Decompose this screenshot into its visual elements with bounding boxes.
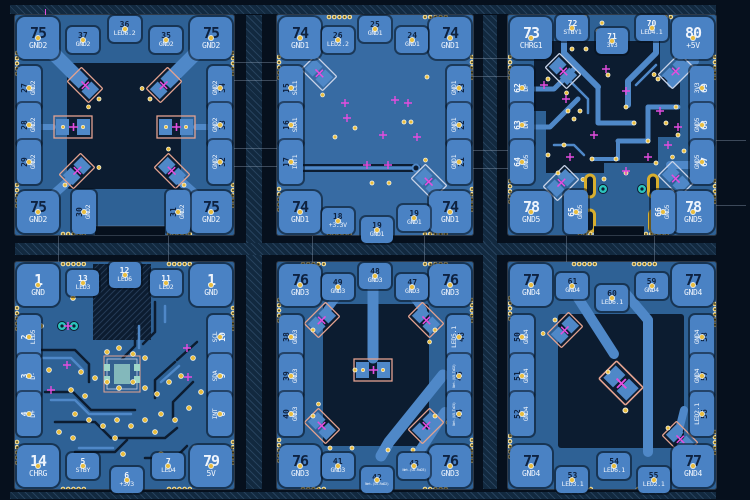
via <box>606 370 610 374</box>
pad-netname: GND4 <box>522 470 540 479</box>
via <box>570 47 574 51</box>
via <box>353 368 357 372</box>
pad-59-gnd4[interactable]: 59GND4 <box>636 273 668 299</box>
pcb-board-3[interactable]: 73CHRG180+5V78GND578GND572STBY1713V370LE… <box>508 15 716 235</box>
pad-49-gnd3[interactable]: 49GND3 <box>322 274 354 300</box>
pad-netname: GND2 <box>29 216 47 225</box>
edge-extension-line <box>233 80 279 81</box>
pad-74-gnd1[interactable]: 74GND1 <box>429 191 471 233</box>
pad-46-led5.1[interactable]: 46LED5.1 <box>447 315 471 359</box>
pad-7-led4[interactable]: 7LED4 <box>152 453 184 479</box>
drill-hole <box>700 335 704 339</box>
pad-netname: GND3 <box>291 470 309 479</box>
pad-25-gnd1[interactable]: 25GND1 <box>359 16 391 42</box>
panel-rail <box>10 492 716 499</box>
via <box>179 374 184 379</box>
pad-75-gnd2[interactable]: 75GND2 <box>17 17 59 59</box>
via <box>79 370 84 375</box>
drill-hole <box>336 285 340 289</box>
pad-57-gnd4[interactable]: 57GND4 <box>690 354 714 398</box>
pad-netname: GND4 <box>684 289 702 298</box>
castellated-holes <box>167 262 192 266</box>
pad-39-gnd3[interactable]: 39GND3 <box>279 354 303 398</box>
pad-77-gnd4[interactable]: 77GND4 <box>672 264 714 306</box>
panel-rail <box>10 5 716 14</box>
pad-32-gnd2[interactable]: 32GND2 <box>208 140 232 184</box>
pad-80-+5v[interactable]: 80+5V <box>672 17 714 59</box>
pad-61-gnd4[interactable]: 61GND4 <box>556 273 588 299</box>
ratsnest-marker <box>343 114 351 122</box>
drill-hole <box>81 464 85 468</box>
pad-8-int[interactable]: 8INT <box>208 392 232 436</box>
drill-hole <box>123 27 127 31</box>
drill-hole <box>529 464 533 468</box>
drill-hole <box>375 478 379 482</box>
board-notch <box>95 226 165 235</box>
drill-hole <box>700 374 704 378</box>
pad-4-d+[interactable]: 4D+ <box>17 392 41 436</box>
via <box>546 153 550 157</box>
pin1-hole <box>540 331 546 337</box>
led-footprint <box>298 55 340 97</box>
pad-76-gnd3[interactable]: 76GND3 <box>429 445 471 487</box>
pad-19-gnd1[interactable]: 19GND1 <box>398 205 430 231</box>
via <box>666 426 670 430</box>
via <box>167 380 172 385</box>
edge-extension-line <box>312 236 313 262</box>
drill-hole <box>336 219 340 223</box>
drill-hole <box>650 26 654 30</box>
pad-29-gnd2[interactable]: 29GND2 <box>17 140 41 184</box>
drill-hole <box>81 281 85 285</box>
pad-netname: Net-(U5-RxD2) <box>365 483 389 487</box>
pad-66-gnd5[interactable]: 66GND5 <box>651 190 675 234</box>
via <box>71 436 76 441</box>
pad-netname: GND3 <box>441 470 459 479</box>
via <box>69 388 74 393</box>
via <box>173 418 178 423</box>
pin1-hole <box>423 157 429 163</box>
ratsnest-marker <box>391 96 399 104</box>
ratsnest-marker <box>413 133 421 141</box>
drill-hole <box>691 464 695 468</box>
pad-netname: GND4 <box>522 289 540 298</box>
via <box>83 394 88 399</box>
pcb-canvas[interactable]: 75GND275GND275GND275GND237GND236LED6.235… <box>0 0 750 500</box>
via <box>159 412 164 417</box>
drill-hole <box>218 335 222 339</box>
pad-50-gnd4[interactable]: 50GND4 <box>510 315 534 359</box>
drill-hole <box>27 374 31 378</box>
pad-netname: GND2 <box>29 42 47 51</box>
via <box>433 414 437 418</box>
pad-netname: GND5 <box>684 216 702 225</box>
edge-extension-line <box>472 168 510 169</box>
edge-extension-line <box>716 205 746 206</box>
drill-hole <box>336 464 340 468</box>
via <box>654 161 658 165</box>
via <box>387 181 391 185</box>
ratsnest-marker <box>341 99 349 107</box>
via <box>624 105 628 109</box>
via <box>153 430 158 435</box>
via <box>353 126 357 130</box>
castellated-holes <box>572 262 597 266</box>
castellated-holes <box>167 487 192 489</box>
pad-10-scl[interactable]: 10SCL <box>208 315 232 359</box>
via <box>117 386 122 391</box>
via <box>199 390 204 395</box>
via <box>646 139 650 143</box>
pad-netname: CHRG <box>29 470 47 479</box>
pad-40-gnd3[interactable]: 40GND3 <box>279 392 303 436</box>
pad-77-gnd4[interactable]: 77GND4 <box>510 445 552 487</box>
via <box>562 143 566 147</box>
pad-65-gnd5[interactable]: 65GND5 <box>564 190 588 234</box>
pad-42-net-u5-rxd2[interactable]: 42Net-(U5-RxD2) <box>361 467 393 493</box>
castellated-holes <box>61 262 86 266</box>
drill-hole <box>375 228 379 232</box>
drill-hole <box>529 283 533 287</box>
pad-11-led2[interactable]: 11LED2 <box>150 270 182 296</box>
copper-zone-void <box>558 314 684 448</box>
pad-19-gnd1[interactable]: 19GND1 <box>361 217 393 243</box>
via <box>191 356 196 361</box>
pad-6-+3v3[interactable]: 6+3V3 <box>111 467 143 493</box>
via <box>590 157 594 161</box>
pad-13-led3[interactable]: 13LED3 <box>67 270 99 296</box>
drill-hole <box>691 36 695 40</box>
drill-hole <box>36 210 40 214</box>
pad-30-gnd2[interactable]: 30GND2 <box>72 190 96 234</box>
via <box>311 414 315 418</box>
via <box>584 47 588 51</box>
via <box>87 418 92 423</box>
pad-1-gnd[interactable]: 1GND <box>17 264 59 306</box>
edge-extension-line <box>472 58 510 59</box>
via <box>402 120 406 124</box>
via <box>553 318 557 322</box>
drill-hole <box>27 335 31 339</box>
pad-78-gnd5[interactable]: 78GND5 <box>510 191 552 233</box>
pad-24-gnd1[interactable]: 24GND1 <box>396 27 428 53</box>
drill-hole <box>209 210 213 214</box>
pad-78-gnd5[interactable]: 78GND5 <box>672 191 714 233</box>
via <box>614 157 618 161</box>
pcb-board-2[interactable]: 74GND174GND174GND174GND126LED2.225GND124… <box>277 15 473 235</box>
pad-31-gnd2[interactable]: 31GND2 <box>166 190 190 234</box>
drill-hole <box>691 210 695 214</box>
edge-extension-line <box>654 236 655 262</box>
edge-extension-line <box>716 140 746 141</box>
drill-hole <box>700 123 704 127</box>
pad-74-gnd1[interactable]: 74GND1 <box>279 191 321 233</box>
pcb-board-5[interactable]: 76GND376GND376GND376GND349GND348GND347GN… <box>277 262 473 489</box>
via <box>93 376 98 381</box>
drill-hole <box>123 273 127 277</box>
via <box>409 120 413 124</box>
via <box>578 109 582 113</box>
via <box>556 171 560 175</box>
drill-hole <box>289 86 293 90</box>
pad-9-sda[interactable]: 9SDA <box>208 354 232 398</box>
drill-hole <box>36 464 40 468</box>
ratsnest-marker <box>379 131 387 139</box>
via <box>674 105 678 109</box>
pad-14-chrg[interactable]: 14CHRG <box>17 445 59 487</box>
ratsnest-marker <box>183 344 191 352</box>
drill-hole <box>652 478 656 482</box>
ratsnest-marker <box>63 361 71 369</box>
via <box>105 380 110 385</box>
pad-21-gnd1[interactable]: 21GND1 <box>447 140 471 184</box>
drill-hole <box>218 374 222 378</box>
pad-60-led6.1[interactable]: 60LED6.1 <box>596 285 628 311</box>
pad-netname: +5V <box>686 42 700 51</box>
via <box>131 380 136 385</box>
pad-43-net-u5-rxd3[interactable]: 43Net-(U5-RxD3) <box>398 453 430 479</box>
pad-35-gnd2[interactable]: 35GND2 <box>150 27 182 53</box>
drill-hole <box>457 374 461 378</box>
pin1-hole <box>320 92 326 98</box>
pad-75-gnd2[interactable]: 75GND2 <box>190 17 232 59</box>
panel-rail <box>15 243 716 255</box>
pad-74-gnd1[interactable]: 74GND1 <box>429 17 471 59</box>
copper-trace <box>51 400 131 414</box>
pad-netname: GND3 <box>291 289 309 298</box>
via <box>370 181 374 185</box>
via <box>129 424 134 429</box>
pad-52-gnd4[interactable]: 52GND4 <box>510 392 534 436</box>
drill-hole <box>125 478 129 482</box>
drill-hole <box>373 274 377 278</box>
pad-38-gnd3[interactable]: 38GND3 <box>279 315 303 359</box>
edge-extension-line <box>472 150 510 151</box>
pad-netname: GND1 <box>291 216 309 225</box>
pad-58-gnd4[interactable]: 58GND4 <box>690 315 714 359</box>
edge-extension-line <box>233 166 279 167</box>
via <box>143 356 148 361</box>
drill-hole <box>81 38 85 42</box>
copper-trace <box>173 382 193 420</box>
via <box>155 392 160 397</box>
drill-hole <box>36 283 40 287</box>
drill-hole <box>529 210 533 214</box>
pad-71-3v3[interactable]: 713V3 <box>596 28 628 54</box>
pad-77-gnd4[interactable]: 77GND4 <box>672 445 714 487</box>
pad-56-led2.1[interactable]: 56LED2.1 <box>690 392 714 436</box>
pad-74-gnd1[interactable]: 74GND1 <box>279 17 321 59</box>
pad-54-led6.1[interactable]: 54LED6.1 <box>598 453 630 479</box>
castellated-holes <box>301 487 326 489</box>
drill-hole <box>520 374 524 378</box>
via <box>350 446 354 450</box>
drill-hole <box>448 36 452 40</box>
castellated-holes <box>327 15 352 19</box>
ratsnest-marker <box>622 167 630 175</box>
copper-trace <box>39 350 89 382</box>
castellated-holes <box>423 487 448 489</box>
pad-18-+3.3v[interactable]: 18+3.3V <box>322 208 354 234</box>
via <box>187 406 192 411</box>
pad-26-led2.2[interactable]: 26LED2.2 <box>322 27 354 53</box>
pad-5-stby[interactable]: 5STBY <box>67 453 99 479</box>
ratsnest-marker <box>404 99 412 107</box>
drill-hole <box>209 464 213 468</box>
via <box>333 135 337 139</box>
edge-extension-line <box>424 236 425 262</box>
drill-hole <box>448 283 452 287</box>
via <box>600 21 604 25</box>
via <box>143 418 148 423</box>
drill-hole <box>691 283 695 287</box>
pad-netname: GND4 <box>684 470 702 479</box>
pad-netname: GND <box>31 289 45 298</box>
drill-hole <box>448 464 452 468</box>
pad-37-gnd2[interactable]: 37GND2 <box>67 27 99 53</box>
pad-55-led2.1[interactable]: 55LED2.1 <box>638 467 670 493</box>
via <box>182 183 186 187</box>
drill-hole <box>289 335 293 339</box>
pad-64-gnd5[interactable]: 64GND5 <box>510 140 534 184</box>
copper-trace <box>39 358 83 370</box>
via <box>311 328 315 332</box>
via <box>386 448 390 452</box>
pad-76-gnd3[interactable]: 76GND3 <box>279 264 321 306</box>
drill-hole <box>218 123 222 127</box>
pad-72-stby1[interactable]: 72STBY1 <box>556 15 588 41</box>
via <box>97 97 101 101</box>
pad-76-gnd3[interactable]: 76GND3 <box>279 445 321 487</box>
pad-76-gnd3[interactable]: 76GND3 <box>429 264 471 306</box>
pad-2-led5[interactable]: 2LED5 <box>17 315 41 359</box>
drill-hole <box>650 284 654 288</box>
via <box>73 412 78 417</box>
drill-hole <box>457 335 461 339</box>
via <box>425 75 429 79</box>
pcb-board-6[interactable]: 77GND477GND477GND477GND461GND460LED6.159… <box>508 262 716 489</box>
drill-hole <box>36 36 40 40</box>
pcb-board-4[interactable]: 1GND1GND14CHRG795V13LED312LED611LED22LED… <box>15 262 234 489</box>
pad-47-gnd3[interactable]: 47GND3 <box>396 274 428 300</box>
pad-12-led6[interactable]: 12LED6 <box>109 262 141 288</box>
pad-netname: CHRG1 <box>520 42 543 51</box>
drill-hole <box>457 123 461 127</box>
drill-hole <box>520 123 524 127</box>
pad-41-gnd3[interactable]: 41GND3 <box>322 453 354 479</box>
pin1-hole <box>670 154 676 160</box>
via <box>682 149 686 153</box>
drill-hole <box>27 123 31 127</box>
via <box>411 448 415 452</box>
ic-footprint <box>104 356 140 392</box>
pad-netname: 5V <box>206 470 215 479</box>
pad-17-int1[interactable]: 17INT1 <box>279 140 303 184</box>
castellated-holes <box>61 487 86 489</box>
pad-45-net-u5-txd2[interactable]: 45Net-(U5-TxD2) <box>447 354 471 398</box>
via <box>664 121 668 125</box>
via <box>676 133 680 137</box>
drill-hole <box>574 210 578 214</box>
via <box>113 436 118 441</box>
pad-netname: GND1 <box>291 42 309 51</box>
via <box>148 97 152 101</box>
drill-hole <box>289 123 293 127</box>
via <box>117 346 122 351</box>
via <box>656 77 660 81</box>
pad-77-gnd4[interactable]: 77GND4 <box>510 264 552 306</box>
drill-hole <box>209 36 213 40</box>
via <box>105 350 110 355</box>
drill-hole <box>209 283 213 287</box>
via <box>328 446 332 450</box>
pad-70-led4.1[interactable]: 70LED4.1 <box>636 15 668 41</box>
pad-36-led6.2[interactable]: 36LED6.2 <box>109 16 141 42</box>
drill-hole <box>448 210 452 214</box>
drill-hole <box>610 39 614 43</box>
pad-75-gnd2[interactable]: 75GND2 <box>17 191 59 233</box>
drill-hole <box>27 86 31 90</box>
pad-67-gnd5[interactable]: 67GND5 <box>690 140 714 184</box>
pad-75-gnd2[interactable]: 75GND2 <box>190 191 232 233</box>
drill-hole <box>289 374 293 378</box>
drill-hole <box>529 36 533 40</box>
edge-extension-line <box>233 62 279 63</box>
pad-netname: GND5 <box>522 216 540 225</box>
via <box>546 77 550 81</box>
drill-hole <box>218 86 222 90</box>
via <box>433 328 437 332</box>
pad-44-net-u5-txd3[interactable]: 44Net-(U5-TxD3) <box>447 392 471 436</box>
via <box>57 430 62 435</box>
pad-48-gnd3[interactable]: 48GND3 <box>359 263 391 289</box>
board-notch <box>594 226 644 235</box>
via <box>572 117 576 121</box>
drill-hole <box>373 27 377 31</box>
pad-netname: GND2 <box>202 216 220 225</box>
via <box>121 452 126 457</box>
edge-extension-line <box>472 76 510 77</box>
drill-hole <box>298 464 302 468</box>
via <box>566 109 570 113</box>
pad-53-led3.1[interactable]: 53LED3.1 <box>556 467 588 493</box>
pcb-board-1[interactable]: 75GND275GND275GND275GND237GND236LED6.235… <box>15 15 234 235</box>
via <box>602 177 606 181</box>
pad-1-gnd[interactable]: 1GND <box>190 264 232 306</box>
pad-73-chrg1[interactable]: 73CHRG1 <box>510 17 552 59</box>
pad-3-d-[interactable]: 3D- <box>17 354 41 398</box>
via <box>101 424 106 429</box>
via <box>632 121 636 125</box>
drill-hole <box>298 36 302 40</box>
pin1-hole <box>316 401 322 407</box>
ratsnest-marker <box>184 373 192 381</box>
pad-79-5v[interactable]: 795V <box>190 445 232 487</box>
pad-51-gnd4[interactable]: 51GND4 <box>510 354 534 398</box>
castellated-holes <box>632 262 657 266</box>
drill-hole <box>298 283 302 287</box>
drill-hole <box>520 335 524 339</box>
edge-extension-line <box>58 236 59 262</box>
via <box>63 183 67 187</box>
via <box>47 368 52 373</box>
pad-netname: GND1 <box>441 216 459 225</box>
via <box>606 73 610 77</box>
via <box>143 386 148 391</box>
pad-netname: Net-(U5-RxD3) <box>402 469 426 473</box>
drill-hole <box>661 210 665 214</box>
pad-netname: GND2 <box>202 42 220 51</box>
